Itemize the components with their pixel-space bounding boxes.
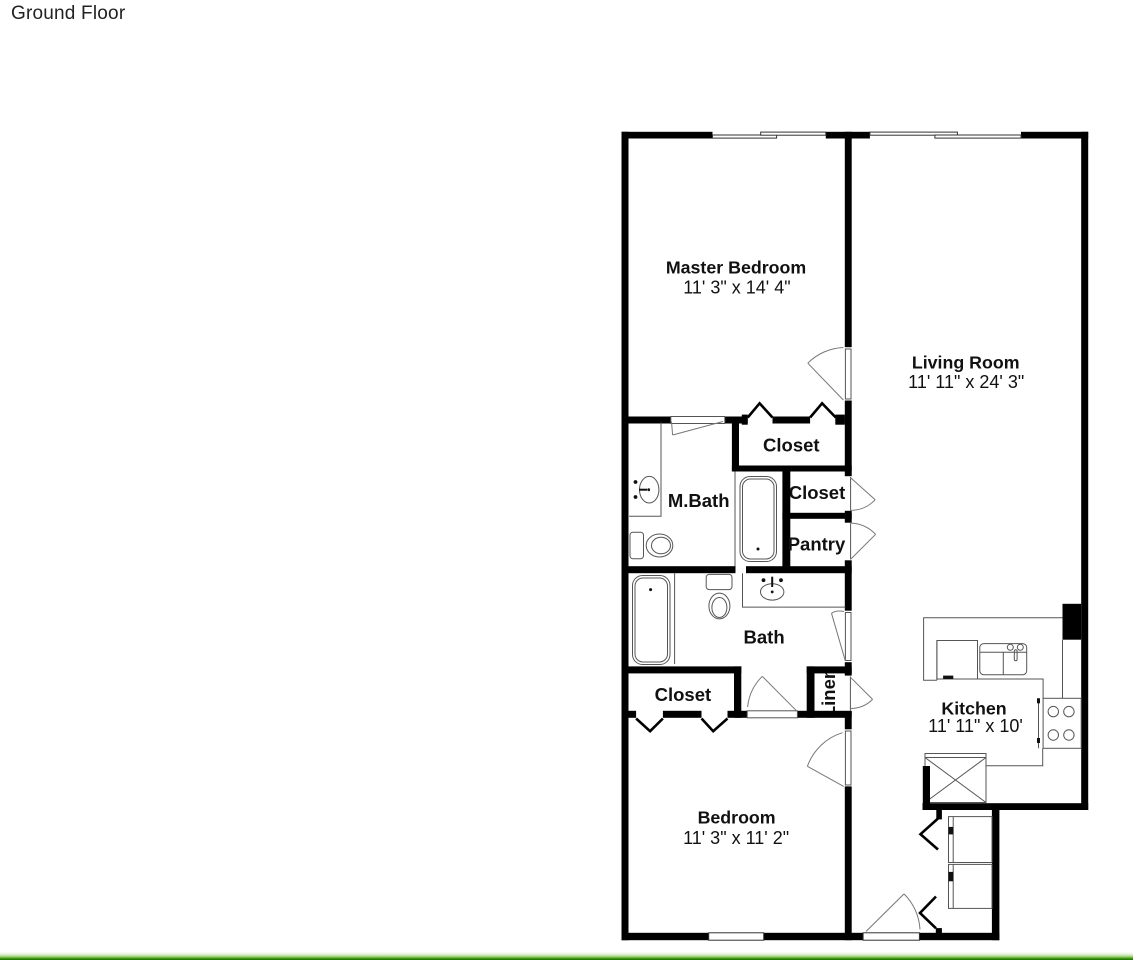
svg-text:Linen: Linen (818, 668, 839, 717)
svg-text:Closet: Closet (763, 435, 820, 456)
svg-text:11' 11" x 10': 11' 11" x 10' (928, 716, 1023, 736)
svg-text:Bedroom: Bedroom (698, 808, 776, 828)
svg-text:11' 3" x 14' 4": 11' 3" x 14' 4" (683, 278, 790, 298)
svg-text:Closet: Closet (789, 482, 846, 503)
svg-text:M.Bath: M.Bath (668, 490, 730, 511)
svg-text:Closet: Closet (655, 684, 712, 705)
svg-text:Living Room: Living Room (912, 353, 1020, 373)
svg-text:11' 3" x 11' 2": 11' 3" x 11' 2" (683, 828, 789, 848)
svg-text:Pantry: Pantry (788, 534, 846, 555)
svg-text:Bath: Bath (744, 627, 785, 648)
svg-text:Master Bedroom: Master Bedroom (666, 258, 806, 278)
svg-text:11' 11" x 24' 3": 11' 11" x 24' 3" (908, 372, 1024, 392)
